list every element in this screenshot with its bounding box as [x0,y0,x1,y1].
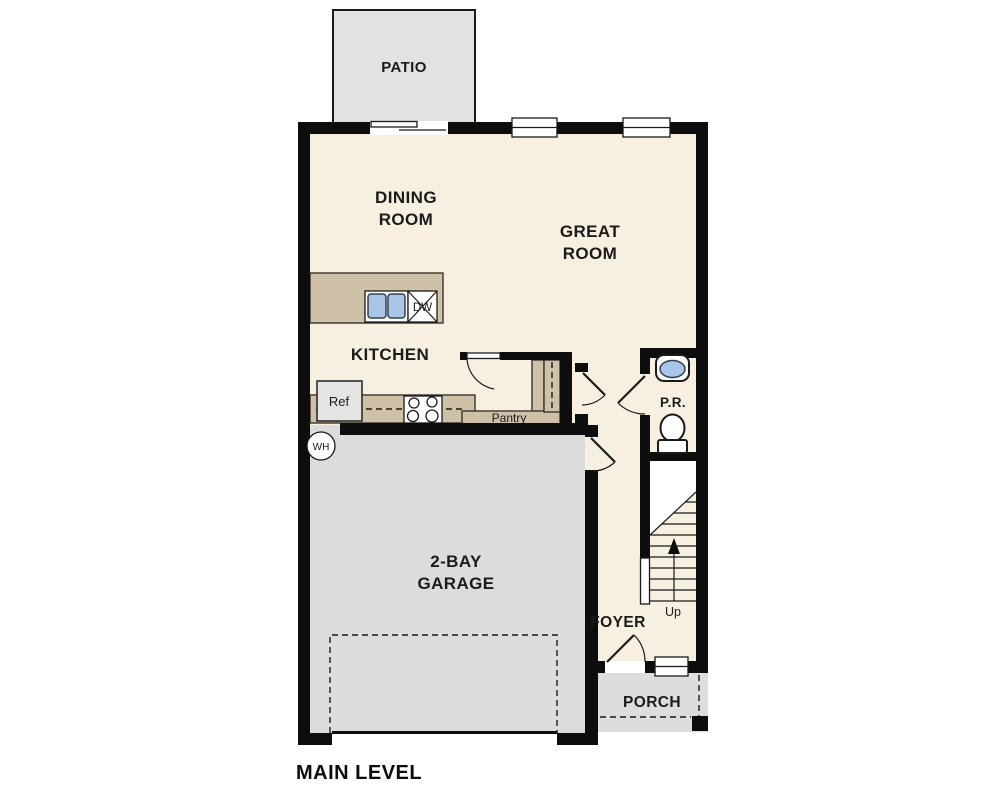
wall-closet-side [560,352,572,435]
stove-burner [427,397,437,407]
room-label-great-2: ROOM [563,244,617,263]
label-pantry: Pantry [492,411,527,425]
wall-bottom-garage-left [298,733,332,745]
stair-railing [641,558,650,604]
pantry-shelf-side [532,360,544,412]
room-label-dining-2: ROOM [379,210,433,229]
plan-title: MAIN LEVEL [296,762,422,784]
wall-hall-door-jamb-bottom [575,414,588,435]
room-label-great-1: GREAT [560,222,620,241]
stove-burner [409,398,419,408]
wall-hall-door-jamb-top [575,363,588,372]
wall-foyer-bottom-right [688,661,708,673]
label-dishwasher: DW [413,302,432,314]
pantry-door-leaf [467,353,500,359]
wall-garage-top [340,423,575,435]
room-label-foyer: FOYER [590,614,645,631]
kitchen-sink-basin-left [368,294,386,318]
patio-slider-panel-outer [371,122,417,128]
floorplan-page: PATIO DINING ROOM GREAT ROOM KITCHEN 2-B… [0,0,1000,800]
wall-powder-room-left-upper [640,358,650,374]
toilet-bowl [661,415,685,442]
wall-foyer-bottom-mid [645,661,655,673]
wall-right [696,122,708,673]
porch-pillar [692,716,708,731]
room-label-kitchen: KITCHEN [351,345,429,364]
wall-foyer-bottom-left [585,661,605,673]
room-label-patio: PATIO [381,59,427,76]
label-up: Up [665,605,681,619]
room-label-garage-2: GARAGE [417,574,494,593]
wall-garage-hall-lower [585,470,598,745]
label-water-heater: WH [313,442,330,453]
powder-room-sink [660,361,685,378]
floorplan-drawing: PATIO DINING ROOM GREAT ROOM KITCHEN 2-B… [0,0,1000,800]
label-refrigerator: Ref [329,394,350,409]
kitchen-sink-basin-right [388,294,405,318]
wall-stair-left [640,461,650,560]
stove-burner [426,410,438,422]
stove-burner [408,411,419,422]
room-label-dining-1: DINING [375,188,437,207]
garage-door-threshold-line [332,731,557,734]
room-label-porch: PORCH [623,694,681,711]
wall-left [298,122,310,745]
room-label-powder-room: P.R. [660,395,686,410]
toilet-tank [658,440,687,453]
room-label-garage-1: 2-BAY [430,552,482,571]
wall-pantry-top-left [460,352,467,360]
